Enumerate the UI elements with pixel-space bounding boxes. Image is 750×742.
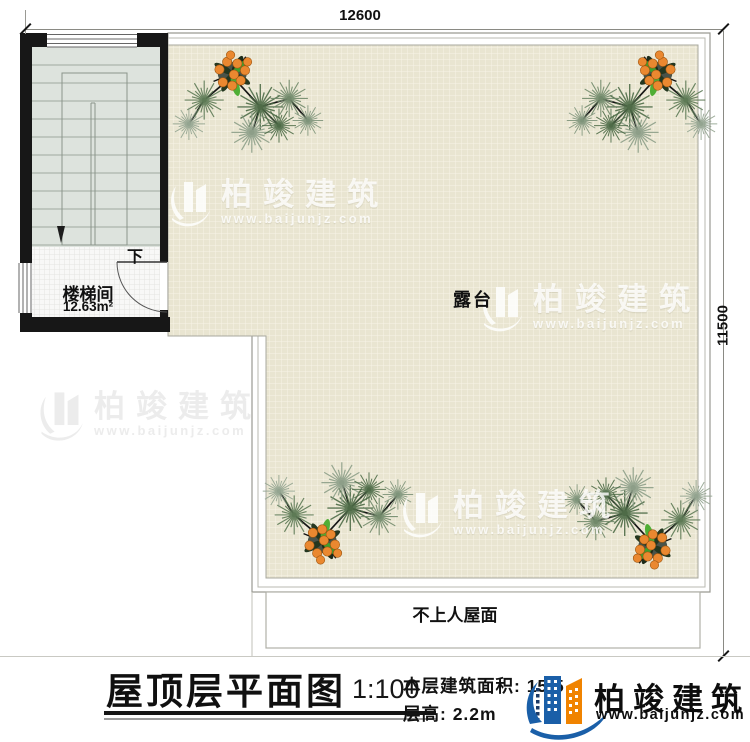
floor-plan-canvas — [0, 0, 750, 660]
drawing-title: 屋顶层平面图 — [106, 661, 346, 715]
stair-room-area: 12.63m² — [48, 299, 128, 314]
title-underline — [104, 711, 436, 715]
stair-flight-area — [32, 47, 160, 247]
dimension-top: 12600 — [310, 7, 410, 24]
floor-height-line: 层高: 2.2m — [403, 701, 497, 726]
title-block-separator — [0, 656, 750, 657]
roof-plan-page: 柏竣建筑 www.baijunjz.com 柏竣建筑 www.baijunjz.… — [0, 0, 750, 742]
terrace-label: 露台 — [438, 286, 508, 312]
floor-height-label: 层高: — [403, 704, 447, 724]
dimension-right: 11500 — [715, 296, 732, 356]
dimension-line-top — [25, 29, 723, 30]
window-left — [18, 263, 32, 313]
floor-area-label: 本层建筑面积: — [403, 676, 521, 696]
stair-direction-label: 下 — [123, 243, 147, 267]
window-top — [47, 33, 137, 47]
lower-roof-label: 不上人屋面 — [390, 601, 520, 626]
brand-website: www.baijunjz.com — [596, 707, 745, 723]
title-underline-thin — [104, 718, 436, 720]
floor-height-value: 2.2m — [453, 704, 497, 724]
